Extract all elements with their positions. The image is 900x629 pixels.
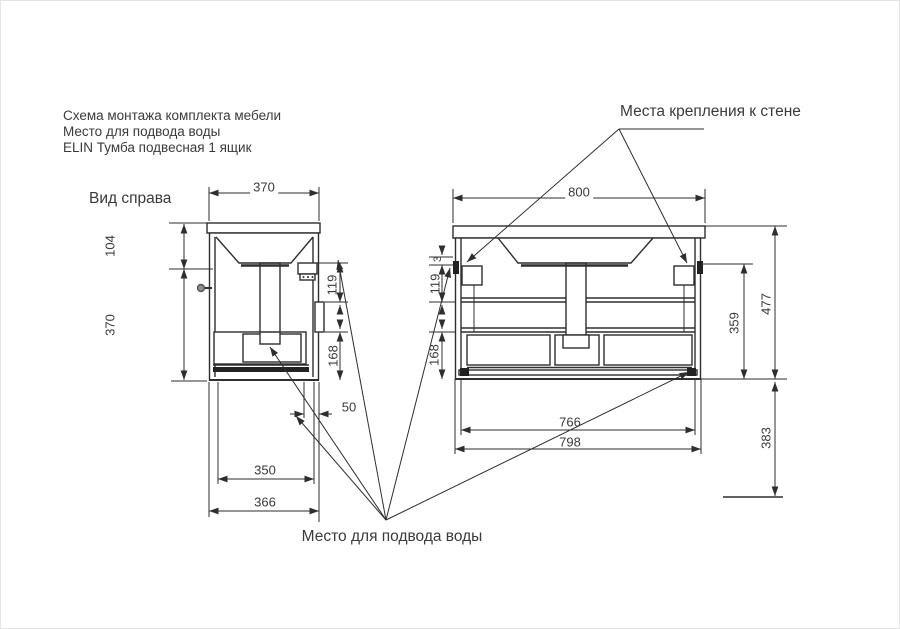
dim-side-119: 119 <box>325 275 340 296</box>
dim-front-477: 477 <box>759 293 774 315</box>
side-view-cabinet <box>198 223 325 380</box>
dim-front-383: 383 <box>759 427 774 449</box>
dim-front-168: 168 <box>427 344 442 366</box>
dim-side-50: 50 <box>342 400 356 415</box>
dim-side-104: 104 <box>103 235 118 257</box>
dim-front-798: 798 <box>559 435 581 450</box>
dim-front-3: 3 <box>432 256 444 262</box>
side-view-label: Вид справа <box>89 190 171 208</box>
title-line-water: Место для подвода воды <box>63 124 281 140</box>
dim-side-366: 366 <box>254 495 276 510</box>
dim-front-766: 766 <box>559 415 581 430</box>
title-block: Схема монтажа комплекта мебели Место для… <box>63 108 281 156</box>
dim-front-119: 119 <box>428 274 443 295</box>
dim-front-359: 359 <box>727 312 742 334</box>
water-supply-label: Место для подвода воды <box>302 528 483 546</box>
installation-diagram-page: Схема монтажа комплекта мебели Место для… <box>0 0 900 629</box>
dim-side-width-370: 370 <box>250 180 278 195</box>
title-line-scheme: Схема монтажа комплекта мебели <box>63 108 281 124</box>
front-view-cabinet <box>453 226 705 379</box>
dim-side-168: 168 <box>326 345 341 367</box>
dim-side-370-vert: 370 <box>103 314 118 336</box>
dim-front-width-800: 800 <box>565 185 593 200</box>
dim-side-350: 350 <box>254 463 276 478</box>
wall-mount-label: Места крепления к стене <box>620 103 801 121</box>
title-line-product: ELIN Тумба подвесная 1 ящик <box>63 140 281 156</box>
